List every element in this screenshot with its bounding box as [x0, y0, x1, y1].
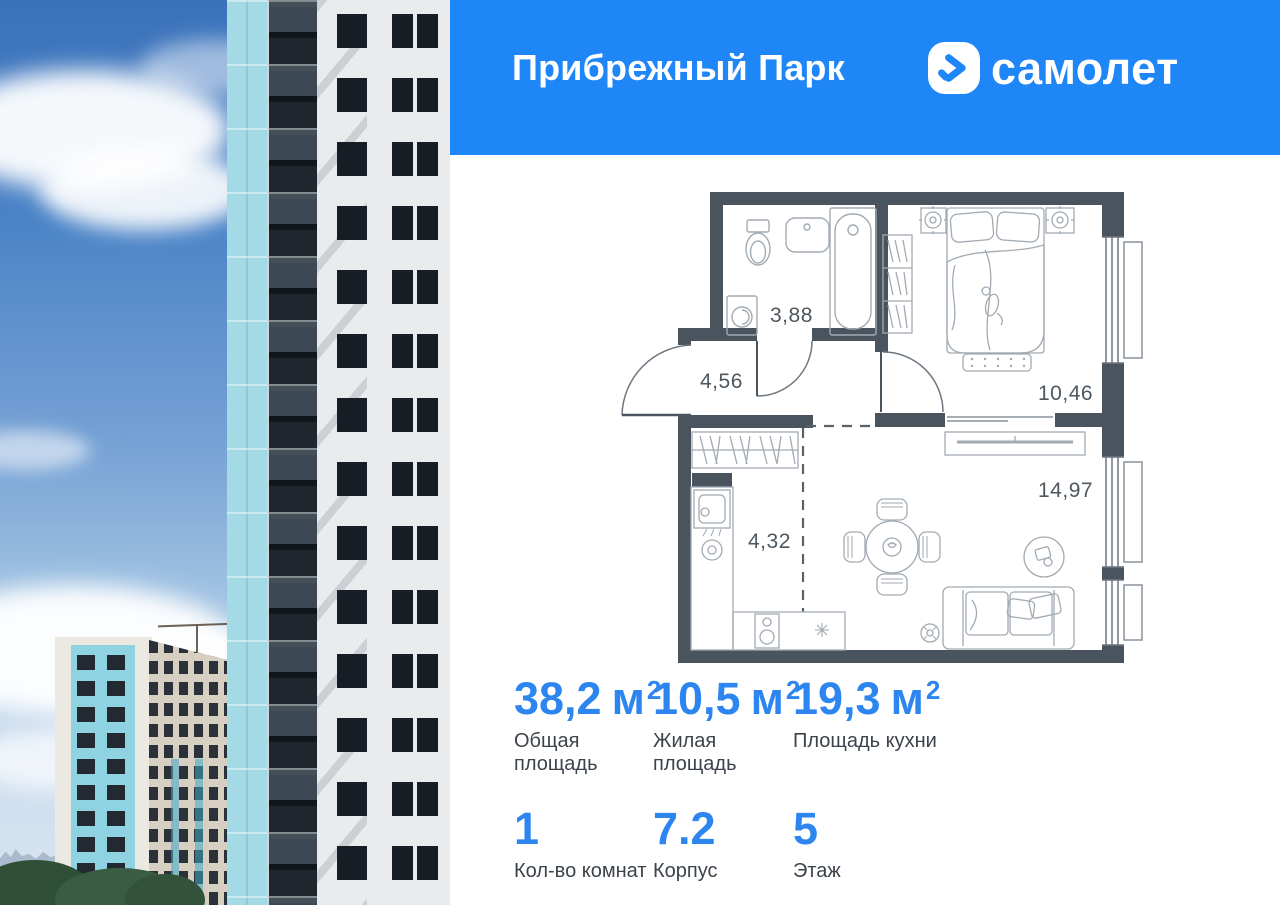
crane: [196, 624, 198, 652]
tower-teal-column: [227, 0, 267, 905]
window-column: [337, 0, 367, 905]
trees: [0, 852, 185, 905]
stat-building: 7.2 Корпус: [653, 806, 793, 883]
stat-floor: 5 Этаж: [793, 806, 1033, 883]
window-column: [392, 0, 438, 905]
living-furniture: [844, 432, 1085, 649]
kitchen-fixtures: [691, 487, 845, 650]
stat-kitchen-area: 19,3м2 Площадь кухни: [793, 676, 1033, 776]
bedroom-furniture: [883, 206, 1074, 371]
area-kitchen: 4,32: [748, 530, 791, 553]
header: Прибрежный Парк самолет: [450, 0, 1280, 155]
samolet-logo: самолет: [928, 42, 1179, 94]
brand-wordmark: самолет: [991, 46, 1179, 91]
samolet-logo-icon: [928, 42, 980, 94]
area-bedroom: 10,46: [1038, 382, 1093, 405]
area-living: 14,97: [1038, 479, 1093, 502]
listing-card: Прибрежный Парк самолет: [0, 0, 1280, 905]
stat-living-area: 10,5м2 Жилая площадь: [653, 676, 793, 776]
project-title: Прибрежный Парк: [512, 47, 845, 89]
tower-white-column: [317, 0, 450, 905]
room-area-labels: 3,88 4,56 10,46 14,97 4,32: [700, 304, 1093, 553]
area-hallway: 4,56: [700, 370, 743, 393]
stat-total-area: 38,2м2 Общая площадь: [514, 676, 653, 776]
building-photo: [0, 0, 450, 905]
area-bathroom: 3,88: [770, 304, 813, 327]
hall-closet: [692, 432, 798, 468]
tower-balcony-column: [267, 0, 317, 905]
stat-rooms: 1 Кол-во комнат: [514, 806, 653, 883]
walls: [678, 192, 1124, 663]
cloud: [40, 150, 250, 230]
floor-plan: 3,88 4,56 10,46 14,97 4,32: [600, 183, 1160, 673]
zone-dashes: [803, 426, 875, 612]
